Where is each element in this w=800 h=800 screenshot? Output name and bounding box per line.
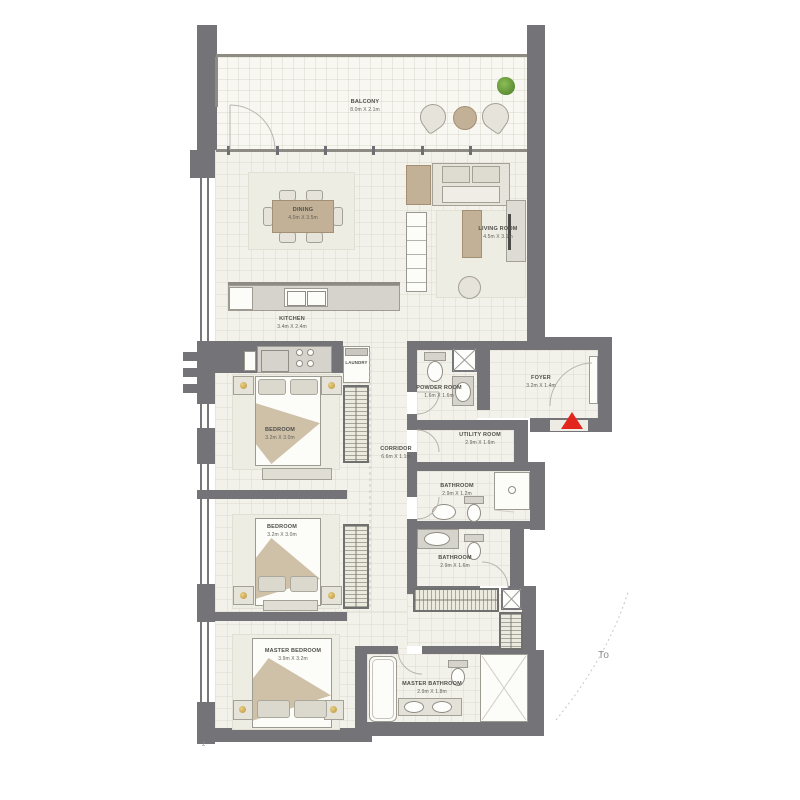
sofa-cushion xyxy=(442,166,470,183)
pillow xyxy=(290,379,318,395)
bathroom-1-sink xyxy=(432,504,456,520)
sofa-seat xyxy=(442,186,500,203)
bathroom-2-sink xyxy=(424,532,450,546)
entry-door-leaf xyxy=(589,356,598,404)
wall-segment xyxy=(528,650,544,736)
bathroom-2-label: BATHROOM 2.9m X 1.6m xyxy=(430,555,480,570)
window-left-living xyxy=(200,178,209,346)
toilet-tank xyxy=(448,660,468,668)
wall-segment xyxy=(190,150,215,178)
balcony-label: BALCONY 8.0m X 2.1m xyxy=(330,99,400,114)
wall-segment xyxy=(197,428,215,464)
wall-segment xyxy=(527,25,545,152)
hob-burner xyxy=(307,360,314,367)
master-closet-2 xyxy=(499,612,523,650)
bedroom-1-dresser xyxy=(262,468,332,480)
wall-segment xyxy=(358,722,540,736)
balcony-table xyxy=(453,106,477,130)
wall-segment xyxy=(510,529,524,586)
dining-chair xyxy=(333,207,343,226)
master-closet xyxy=(413,588,499,612)
wall-segment xyxy=(407,341,612,350)
side-table xyxy=(406,165,431,205)
laundry-label: LAUNDRY xyxy=(343,360,370,366)
wall-segment xyxy=(183,352,199,361)
balcony-left-edge xyxy=(215,57,218,107)
floor-plan: BALCONY 8.0m X 2.1m DINING 4.0m X 3.5m L… xyxy=(0,0,800,800)
foyer-label: FOYER 3.2m X 1.4m xyxy=(516,375,566,390)
pouf xyxy=(458,276,481,299)
bedroom-1-label: BEDROOM 3.2m X 3.0m xyxy=(248,427,312,442)
dining-chair xyxy=(306,232,323,243)
master-shower xyxy=(480,654,528,722)
pillow xyxy=(258,379,286,395)
window-left-bedroom-1 xyxy=(200,404,209,428)
wall-segment xyxy=(355,646,367,730)
master-sink xyxy=(404,701,424,713)
hob-burner xyxy=(307,349,314,356)
wall-segment xyxy=(197,728,372,742)
powder-shaft xyxy=(452,348,477,372)
toilet xyxy=(467,504,481,522)
sink-basin xyxy=(287,291,306,306)
wall-segment xyxy=(197,346,215,404)
pillow xyxy=(258,576,286,592)
corridor-label: CORRIDOR 6.6m X 1.1m xyxy=(368,446,424,461)
nightstand-lamp xyxy=(239,706,246,713)
pillow xyxy=(294,700,327,718)
window-mullion xyxy=(469,146,472,155)
nightstand-lamp xyxy=(330,706,337,713)
nightstand-lamp xyxy=(240,382,247,389)
wall-segment xyxy=(332,346,343,373)
window-mullion xyxy=(276,146,279,155)
pillow xyxy=(257,700,290,718)
dining-label: DINING 4.0m X 3.5m xyxy=(272,207,334,222)
wall-segment xyxy=(527,152,545,347)
truncated-note: To xyxy=(598,650,609,661)
oven xyxy=(261,350,289,372)
bookshelf xyxy=(406,212,427,292)
bedroom-2-dresser xyxy=(263,600,318,611)
kitchen-label: KITCHEN 3.4m X 2.4m xyxy=(262,316,322,331)
sofa-cushion xyxy=(472,166,500,183)
wall-segment xyxy=(183,384,199,393)
master-bathroom-label: MASTER BATHROOM 2.9m X 1.8m xyxy=(396,681,468,696)
wall-segment xyxy=(197,490,347,499)
wall-segment xyxy=(407,519,417,594)
toilet xyxy=(427,361,443,382)
utility-room-label: UTILITY ROOM 2.9m X 1.6m xyxy=(448,432,512,447)
wall-segment xyxy=(197,612,347,621)
fridge xyxy=(229,287,253,310)
wall-segment xyxy=(417,420,528,430)
wall-segment xyxy=(514,430,528,462)
hob-burner xyxy=(296,360,303,367)
plant-icon xyxy=(497,77,515,95)
window-mullion xyxy=(421,146,424,155)
shower-drain xyxy=(508,486,516,494)
pillow xyxy=(290,576,318,592)
window-mullion xyxy=(324,146,327,155)
toilet-tank xyxy=(424,352,446,361)
hob-burner xyxy=(296,349,303,356)
wardrobe-bedroom-2 xyxy=(343,524,369,609)
window-left-bedroom-2 xyxy=(200,464,209,584)
dining-chair xyxy=(279,232,296,243)
entry-marker-triangle xyxy=(561,412,583,429)
master-bedroom-label: MASTER BEDROOM 3.9m X 3.2m xyxy=(248,648,338,663)
wall-segment xyxy=(197,25,217,150)
nightstand-lamp xyxy=(328,382,335,389)
powder-room-label: POWDER ROOM 1.6m X 1.6m xyxy=(413,385,465,400)
washer-appliance xyxy=(345,348,368,356)
sheet-mark: 2 xyxy=(202,742,205,748)
appliance-inset xyxy=(244,351,256,371)
wall-segment xyxy=(417,521,545,529)
wall-segment xyxy=(522,586,536,652)
bathtub-inner xyxy=(372,659,394,719)
nightstand-lamp xyxy=(240,592,247,599)
bedroom-2-label: BEDROOM 3.2m X 3.0m xyxy=(250,524,314,539)
window-mullion xyxy=(227,146,230,155)
service-shaft xyxy=(501,588,522,610)
wall-segment xyxy=(477,350,490,410)
nightstand-lamp xyxy=(328,592,335,599)
wall-segment xyxy=(183,368,199,377)
master-sink xyxy=(432,701,452,713)
balcony-parapet xyxy=(216,54,527,57)
living-room-label: LIVING ROOM 4.5m X 3.1m xyxy=(472,226,524,241)
bathroom-1-label: BATHROOM 2.9m X 1.2m xyxy=(432,483,482,498)
wall-segment xyxy=(407,414,417,430)
window-mullion xyxy=(372,146,375,155)
wall-segment xyxy=(417,462,545,471)
window-left-master xyxy=(200,622,209,702)
sink-basin xyxy=(307,291,326,306)
wardrobe-bedroom-1 xyxy=(343,385,369,463)
toilet-tank xyxy=(464,534,484,542)
